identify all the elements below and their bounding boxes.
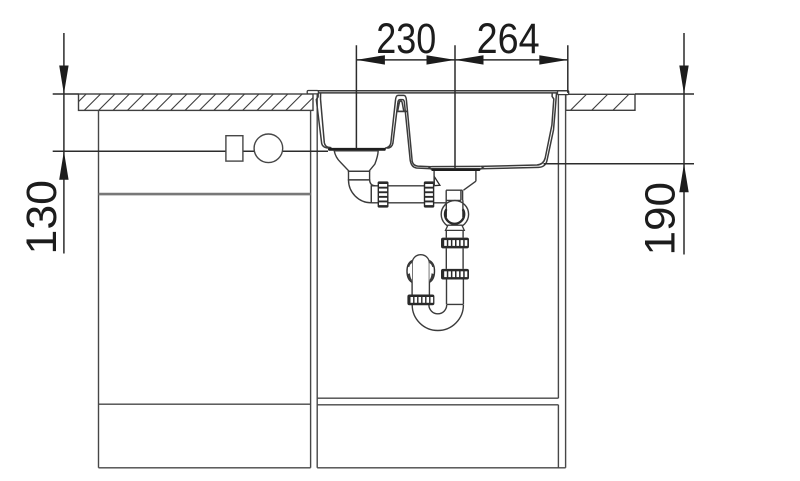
svg-text:190: 190 <box>638 182 685 256</box>
svg-text:264: 264 <box>477 16 540 63</box>
svg-text:230: 230 <box>376 16 436 63</box>
svg-text:130: 130 <box>19 180 66 255</box>
